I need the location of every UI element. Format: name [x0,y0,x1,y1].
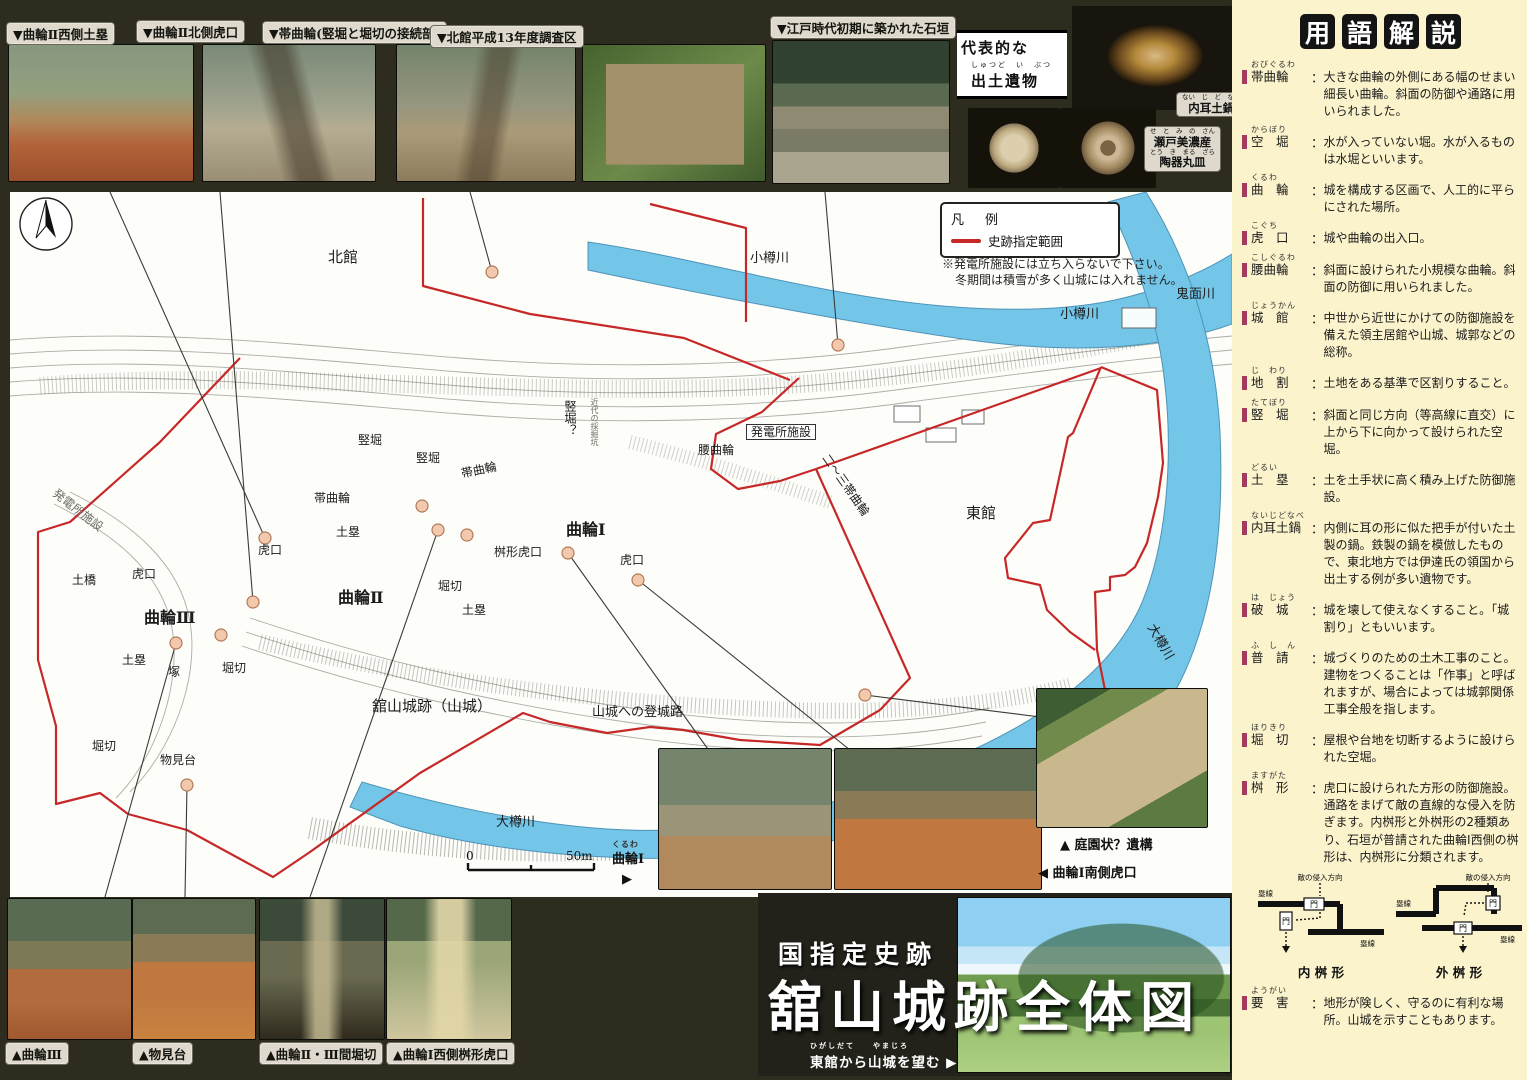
glossary-panel: 用 語 解 説 おびぐるわ帯曲輪 ： 大きな曲輪の外側にある幅のせまい細長い曲輪… [1232,0,1527,1080]
enemy-direction-label: 敵の侵入方向 [1298,872,1343,882]
map-label-koguchi-3: 虎口 [620,554,644,566]
map-label-dorui: 土塁 [336,526,360,538]
entry-bullet [1242,135,1247,149]
outer-masugata-caption: 外 桝 形 [1394,962,1524,981]
map-label-tateyama-castle: 舘山城跡（山城） [372,699,492,714]
svg-text:50m: 50m [566,849,593,863]
map-label-monomidai: 物見台 [160,754,196,766]
photo-monomidai-bottom [132,898,256,1040]
glossary-entry-koshikuruwa: こしぐるわ腰曲輪 ： 斜面に設けられた小規模な曲輪。斜面の防御に用いられました。 [1242,254,1519,296]
kuruwa1-inset-label: くるわ 曲輪Ⅰ [612,840,644,867]
entry-bullet [1242,651,1247,665]
photo-ceramic-dish [968,108,1060,188]
kuruwa1-text: 曲輪Ⅰ [612,852,644,867]
entry-bullet [1242,733,1247,747]
glossary-entry-jiwari: じ わり地 割 ： 土地をある基準で区割りすること。 [1242,367,1519,393]
enemy-direction-label: 敵の侵入方向 [1466,872,1511,882]
map-label-dobashi: 土橋 [72,574,96,586]
kuruwa1-furigana: くるわ [612,840,644,848]
map-label-kuruwa3: 曲輪Ⅲ [144,610,196,626]
gate-label: 門 [1489,899,1497,908]
glossary-heading: 用 語 解 説 [1242,14,1519,49]
legend-red-line [951,239,981,243]
landscape-pointer-icon: ▶ [946,1055,957,1071]
masugata-diagrams: 敵の侵入方向 門 門 塁線 塁線 内 桝 形 [1256,872,1519,981]
photo-kuruwa2-north-koguchi [202,44,376,182]
rampart-line-label: 塁線 [1396,898,1412,908]
top-photo-caption: ▼曲輪Ⅱ北側虎口 [136,20,245,43]
gate-label: 門 [1310,900,1318,909]
entry-bullet [1242,263,1247,277]
artifacts-heading-line1: 代表的な [961,37,1063,58]
map-label-koshikuruwa: 腰曲輪 [698,444,734,456]
photo-masugata-koguchi-bottom [386,898,512,1040]
note-winter-snow: 冬期間は積雪が多く山城には入れません。 [942,272,1183,288]
glossary-entry-dorui: どるい土 塁 ： 土を土手状に高く積み上げた防御施設。 [1242,464,1519,506]
south-koguchi-caption: ◀ 曲輪Ⅰ南側虎口 [1038,862,1137,881]
map-label-higashidate: 東館 [966,506,996,521]
map-label-kuruwa2: 曲輪Ⅱ [338,590,384,606]
glossary-entry-tatebori: たてぼり竪 堀 ： 斜面と同じ方向（等高線に直交）に上から下に向かって設けられた… [1242,399,1519,458]
bottom-photo-caption: ▲曲輪Ⅰ西側桝形虎口 [386,1042,515,1065]
gate-label: 門 [1282,917,1290,926]
map-label-koguchi-2: 虎口 [132,568,156,580]
map-label-tatebori: 竪堀 [358,434,382,446]
map-label-kotaru-river-2: 小樽川 [1060,308,1099,321]
artifact-label-seto-mino-plate: せ と み の さん 瀬戸美濃産 とう き まる ざら 陶器丸皿 [1144,126,1221,172]
top-photo-caption: ▼江戸時代初期に築かれた石垣 [770,16,956,39]
top-photo-caption: ▼曲輪Ⅱ西側土塁 [6,22,115,45]
bottom-photo-caption: ▲曲輪Ⅱ・Ⅲ間堀切 [259,1042,383,1065]
photo-kuruwa3-bottom [7,898,132,1040]
glossary-entry-yogai: ようがい要 害 ： 地形が険しく、守るのに有利な場所。山城を示すこともあります。 [1242,987,1519,1029]
map-label-otaru-river: 大樽川 [496,816,535,829]
map-label-tatebori-2: 竪堀 [416,452,440,464]
entry-bullet [1242,603,1247,617]
photo-kuruwa1-south-koguchi [834,748,1042,890]
glossary-entry-masugata: ますがた桝 形 ： 虎口に設けられた方形の防御施設。通路をまげて敵の直線的な侵入… [1242,772,1519,865]
svg-text:0: 0 [466,849,474,863]
photo-horikiri-bottom [259,898,385,1040]
map-label-horikiri-2: 堀切 [222,662,246,674]
entry-bullet [1242,231,1247,245]
title-block: 国指定史跡 舘山城跡全体図 ひがしだて やまじろ 東館から山城を望む ▶ [758,893,1235,1076]
photo-kuruwa2-west-dorui [8,44,194,182]
entry-bullet [1242,408,1247,422]
photo-kitadate-survey-area [582,44,766,182]
entry-bullet [1242,311,1247,325]
top-photo-caption: ▼北館平成13年度調査区 [430,25,584,48]
landscape-caption-furigana: ひがしだて やまじろ [810,1041,957,1051]
entry-bullet [1242,183,1247,197]
pamphlet-sheet: ▼曲輪Ⅱ西側土塁 ▼曲輪Ⅱ北側虎口 ▼帯曲輪(竪堀と堀切の接続部) ▼北館平成1… [0,0,1527,1080]
legend-item-label: 史跡指定範囲 [988,231,1063,250]
kuruwa1-pointer-icon: ▶ [622,872,632,887]
top-photo-caption: ▼帯曲輪(竪堀と堀切の接続部) [262,21,447,44]
artifacts-heading-line2: 出土遺物 [971,70,1063,91]
photo-obikuruwa-junction [396,44,576,182]
glossary-entry-fushin: ふ し ん普 請 ： 城づくりのための土木工事のこと。建物をつくることは「作事」… [1242,642,1519,718]
page-title: 舘山城跡全体図 [768,963,1202,1042]
glossary-heading-char: 語 [1342,14,1377,49]
bottom-photo-caption: ▲曲輪Ⅲ [5,1042,69,1065]
glossary-heading-char: 用 [1300,14,1335,49]
map-label-power-plant: 発電所施設 [746,424,816,440]
map-label-dorui-2: 土塁 [462,604,486,616]
entry-bullet [1242,521,1247,535]
rampart-line-label: 塁線 [1360,938,1376,948]
map-label-obikuruwa: 帯曲輪 [314,492,350,504]
glossary-entry-hajo: は じょう破 城 ： 城を壊して使えなくすること。「城割り」ともいいます。 [1242,594,1519,636]
map-label-horikiri: 堀切 [438,580,462,592]
map-label-kotaru-river: 小樽川 [750,252,789,265]
map-label-tsuka: 塚 [168,666,180,678]
entry-bullet [1242,473,1247,487]
map-label-approach-route: 山城への登城路 [592,706,683,719]
map-label-tatebori-q: 竪堀？ [564,400,576,436]
photo-ceramic-plate [1060,108,1156,188]
map-label-koguchi: 虎口 [258,544,282,556]
rampart-line-label: 塁線 [1258,888,1274,898]
map-label-modern-pit: 近代の採掘坑 [590,398,598,446]
artifacts-heading-furigana: しゅつど い ぶつ [971,60,1063,70]
landscape-caption-text: 東館から山城を望む [810,1055,941,1071]
inner-masugata-caption: 内 桝 形 [1256,962,1386,981]
glossary-entry-horikiri: ほりきり堀 切 ： 屋根や台地を切断するように設けられた空堀。 [1242,724,1519,766]
map-legend: 凡 例 史跡指定範囲 [940,202,1120,258]
inner-masugata-diagram: 敵の侵入方向 門 門 塁線 塁線 内 桝 形 [1256,872,1386,981]
entry-bullet [1242,996,1247,1010]
map-label-kimen-river: 鬼面川 [1176,288,1215,301]
glossary-entry-kuruwa: くるわ曲 輪 ： 城を構成する区画で、人工的に平らにされた場所。 [1242,174,1519,216]
glossary-entry-naiji-donabe: ないじどなべ内耳土鍋 ： 内側に耳の形に似た把手が付いた土製の鍋。鉄製の鍋を模倣… [1242,512,1519,588]
map-label-masugata-koguchi: 桝形虎口 [494,546,542,558]
landscape-caption: ひがしだて やまじろ 東館から山城を望む ▶ [810,1041,957,1071]
map-label-horikiri-3: 堀切 [92,740,116,752]
gate-label: 門 [1459,924,1467,933]
reference-dots [170,266,871,791]
artifacts-heading: 代表的な しゅつど い ぶつ 出土遺物 [957,30,1067,99]
legend-title: 凡 例 [951,209,1109,228]
entry-bullet [1242,70,1247,84]
photo-edo-stone-wall [772,40,950,184]
glossary-entry-koguchi: こぐち虎 口 ： 城や曲輪の出入口。 [1242,222,1519,248]
map-label-dorui-3: 土塁 [122,654,146,666]
map-label-kuruwa1: 曲輪Ⅰ [566,522,606,538]
garden-remains-caption: ▲ 庭園状？遺構 [1060,834,1153,853]
site-map-panel: 0 50m 北館 小樽川 鬼面川 小樽川 竪堀 竪堀 竪堀？ 近代の採掘坑 帯曲… [10,192,1232,897]
entry-bullet [1242,376,1247,390]
glossary-entry-jokan: じょうかん城 館 ： 中世から近世にかけての防御施設を備えた領主居館や山城、城郭… [1242,302,1519,361]
glossary-heading-char: 説 [1426,14,1461,49]
map-notes: ※発電所施設には立ち入らないで下さい。 冬期間は積雪が多く山城には入れません。 [942,256,1183,288]
outer-masugata-diagram: 敵の侵入方向 門 門 塁線 塁線 外 桝 形 [1394,872,1524,981]
photo-garden-remains [1036,688,1208,828]
map-label-kitadate: 北館 [328,250,358,265]
compass-icon [20,198,72,250]
glossary-heading-char: 解 [1384,14,1419,49]
note-power-plant: ※発電所施設には立ち入らないで下さい。 [942,256,1183,272]
glossary-entry-obikuruwa: おびぐるわ帯曲輪 ： 大きな曲輪の外側にある幅のせまい細長い曲輪。斜面の防御や通… [1242,61,1519,120]
rampart-line-label: 塁線 [1500,934,1516,944]
photo-kuruwa1-inset [658,748,832,890]
glossary-entry-karabori: からぼり空 堀 ： 水が入っていない堀。水が入るものは水堀といいます。 [1242,126,1519,168]
entry-bullet [1242,781,1247,795]
bottom-photo-caption: ▲物見台 [132,1042,193,1065]
